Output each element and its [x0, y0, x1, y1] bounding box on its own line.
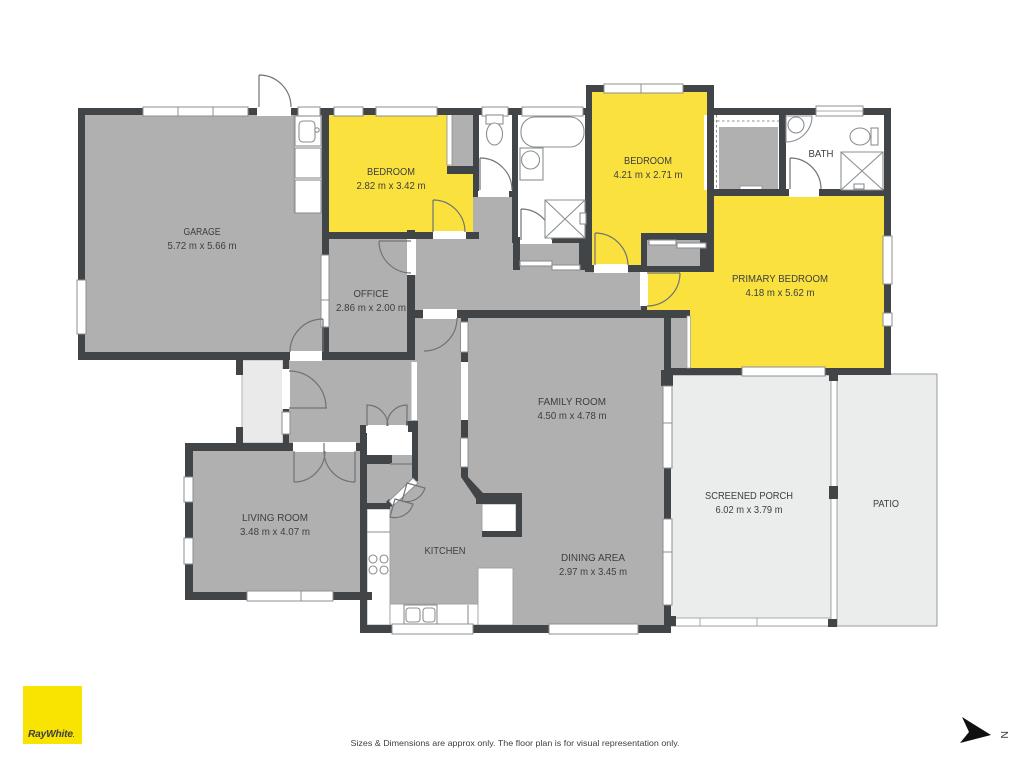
svg-text:FAMILY ROOM: FAMILY ROOM: [538, 396, 606, 408]
svg-text:GARAGE: GARAGE: [184, 226, 221, 238]
svg-text:3.48 m x 4.07 m: 3.48 m x 4.07 m: [240, 526, 310, 538]
svg-text:RayWhite.: RayWhite.: [28, 729, 75, 740]
svg-text:N: N: [998, 731, 1010, 739]
svg-text:LIVING ROOM: LIVING ROOM: [242, 512, 308, 524]
svg-text:5.72 m x 5.66 m: 5.72 m x 5.66 m: [168, 240, 237, 252]
svg-text:2.86 m x 2.00 m: 2.86 m x 2.00 m: [336, 302, 406, 314]
svg-text:DINING AREA: DINING AREA: [561, 552, 625, 564]
svg-text:PRIMARY BEDROOM: PRIMARY BEDROOM: [732, 273, 828, 285]
svg-text:2.97 m x 3.45 m: 2.97 m x 3.45 m: [559, 566, 627, 578]
svg-text:BEDROOM: BEDROOM: [624, 155, 672, 167]
svg-text:OFFICE: OFFICE: [354, 288, 389, 300]
svg-text:SCREENED PORCH: SCREENED PORCH: [705, 490, 793, 502]
svg-text:PATIO: PATIO: [873, 498, 899, 510]
svg-text:6.02 m x 3.79 m: 6.02 m x 3.79 m: [716, 504, 783, 516]
svg-text:BEDROOM: BEDROOM: [367, 166, 415, 178]
svg-text:BATH: BATH: [809, 148, 834, 160]
svg-text:4.21 m x 2.71 m: 4.21 m x 2.71 m: [614, 169, 683, 181]
svg-text:4.50 m x 4.78 m: 4.50 m x 4.78 m: [538, 410, 607, 422]
svg-text:Sizes & Dimensions are approx: Sizes & Dimensions are approx only. The …: [351, 739, 680, 748]
svg-text:4.18 m x 5.62 m: 4.18 m x 5.62 m: [746, 287, 815, 299]
svg-text:KITCHEN: KITCHEN: [425, 545, 466, 557]
svg-text:2.82 m x 3.42 m: 2.82 m x 3.42 m: [357, 180, 426, 192]
